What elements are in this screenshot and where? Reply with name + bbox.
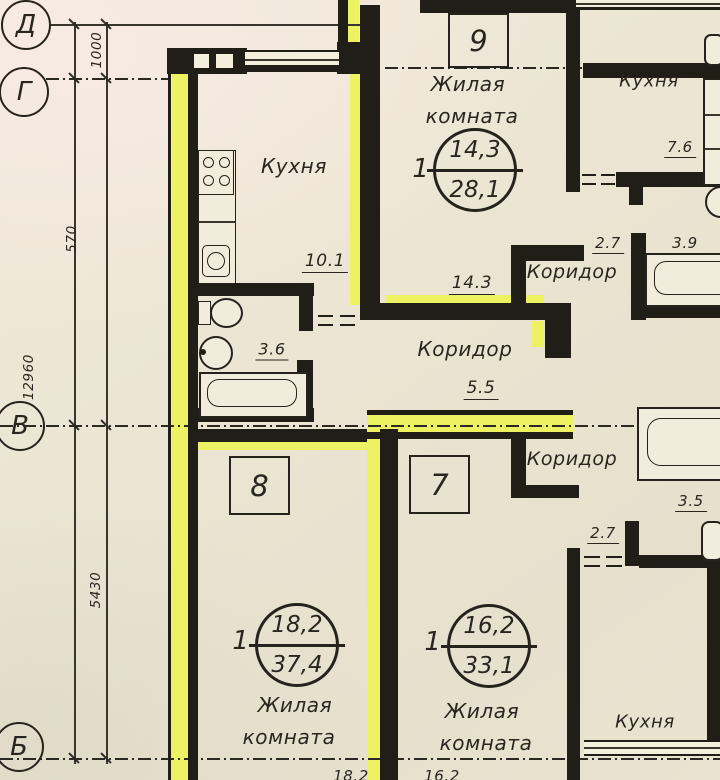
area-dimension: 3.9 [669,234,701,252]
area-value: 3.6 [255,340,288,361]
window [576,0,720,10]
room-label: комната [426,104,519,128]
bathtub [199,372,308,418]
wall-segment [511,485,579,498]
room-label: Жилая [445,699,520,723]
stamp-divider [249,644,345,647]
toilet [701,521,720,561]
stove-burner-icon [219,175,230,186]
room-label: Коридор [527,261,618,283]
area-value: 7.6 [664,138,696,158]
wall-segment [299,283,313,331]
area-dimension: 3.6 [255,340,288,359]
wall-segment [420,0,576,13]
unit-number: 9 [469,24,487,58]
door-opening [318,315,333,326]
wall-segment [168,52,171,780]
unit-number-square: 7 [409,455,470,514]
room-count: 1 [424,627,441,657]
dimension-text: 1000 [89,32,105,69]
room-label: Коридор [527,448,618,470]
bathtub-inner [207,379,297,407]
kitchen-sink [202,245,230,277]
wall-segment [566,0,580,192]
total-area: 33,1 [450,653,528,679]
area-dimension: 5.5 [464,378,499,398]
axis-circle-b: Б [0,722,44,772]
dimension-line [106,22,108,764]
window [584,740,720,756]
unit-number-square: 9 [448,13,509,68]
bathtub-inner [647,418,720,466]
living-area: 18,2 [258,612,336,638]
bathtub [645,253,720,307]
axis-circle-v: В [0,401,45,451]
dimension-text: 570 [64,225,80,253]
area-value: 18.2 [333,767,369,780]
counter-divider [705,148,720,150]
axis-label: Г [17,77,32,107]
wall-segment [360,303,562,320]
counter-divider [705,114,720,116]
area-dimension: 3.5 [675,492,707,510]
sink-bowl-icon [207,252,225,270]
wall-segment [197,283,314,296]
area-dimension: 14.3 [449,273,495,293]
living-area: 14,3 [436,137,514,163]
wall-segment [380,429,398,780]
room-label: Коридор [417,337,512,361]
area-value: 5.5 [464,378,499,400]
wall-segment [545,303,571,358]
axis-circle-d: Д [1,0,51,50]
room-label: комната [440,731,533,755]
wall-segment [367,410,573,415]
stove-burner-icon [203,175,214,186]
area-dimension: 10.1 [302,251,348,271]
stamp-divider [427,169,523,172]
wall-segment [511,245,526,309]
window [192,52,211,70]
wall-segment [360,5,380,305]
counter-divider [199,221,235,223]
area-value: 3.9 [669,234,701,254]
window [214,52,235,70]
area-dimension: 2.7 [587,524,619,542]
kitchen-counter [198,150,236,284]
dimension-line [74,22,76,764]
area-dimension: 7.6 [664,138,696,156]
unit-number: 8 [250,469,268,503]
door-opening [601,174,615,185]
wall-segment [707,568,720,743]
washbasin [705,186,720,218]
stove [198,150,234,195]
area-value: 2.7 [587,524,619,544]
room-label: Кухня [615,712,675,733]
wall-segment [338,0,348,52]
room-label: Жилая [258,693,333,717]
door-opening [584,556,600,567]
stamp-divider [441,645,537,648]
kitchen-counter [703,78,720,186]
door-opening [606,556,622,567]
area-value: 14.3 [449,273,495,295]
washbasin-tap [200,349,206,355]
axis-line-d [50,24,365,26]
highlight-wall [532,321,544,347]
total-area: 28,1 [436,177,514,203]
highlight-wall [194,441,367,450]
window [245,50,339,72]
stove-burner-icon [203,157,214,168]
bathtub-inner [654,261,720,295]
wall-segment [190,429,367,442]
room-label: Жилая [431,72,506,96]
toilet [704,34,720,66]
highlight-wall [367,429,380,780]
area-value: 3.5 [675,492,707,512]
total-area: 37,4 [258,652,336,678]
area-dimension: 18.2 [333,767,369,780]
stove-burner-icon [219,157,230,168]
area-dimension: 16.2 [424,767,460,780]
axis-label: В [11,411,29,441]
area-dimension: 2.7 [592,234,624,252]
area-value: 10.1 [302,251,348,273]
wall-segment [629,187,643,205]
window-mullion [576,3,720,5]
area-value: 16.2 [424,767,460,780]
dimension-text: 12960 [21,354,37,400]
wall-segment [625,521,639,566]
living-area: 16,2 [450,613,528,639]
door-opening [582,174,596,185]
bathtub [637,407,720,481]
axis-label: Д [16,10,36,40]
axis-circle-g: Г [0,67,49,117]
area-value: 2.7 [592,234,624,254]
door-opening [340,315,355,326]
room-count: 1 [232,626,249,656]
window-mullion [584,747,720,749]
room-label: Кухня [619,71,679,92]
toilet-bowl [210,298,243,328]
unit-number: 7 [430,468,448,502]
window-mullion [245,59,339,61]
axis-label: Б [10,732,28,762]
floor-plan: Д Г В Б 1000 570 12960 5430 9 8 7 1 14,3… [0,0,720,780]
room-label: Кухня [261,154,327,178]
room-label: комната [243,725,336,749]
wall-segment [567,548,580,780]
unit-number-square: 8 [229,456,290,515]
dimension-text: 5430 [88,572,104,609]
highlight-wall [172,55,188,780]
